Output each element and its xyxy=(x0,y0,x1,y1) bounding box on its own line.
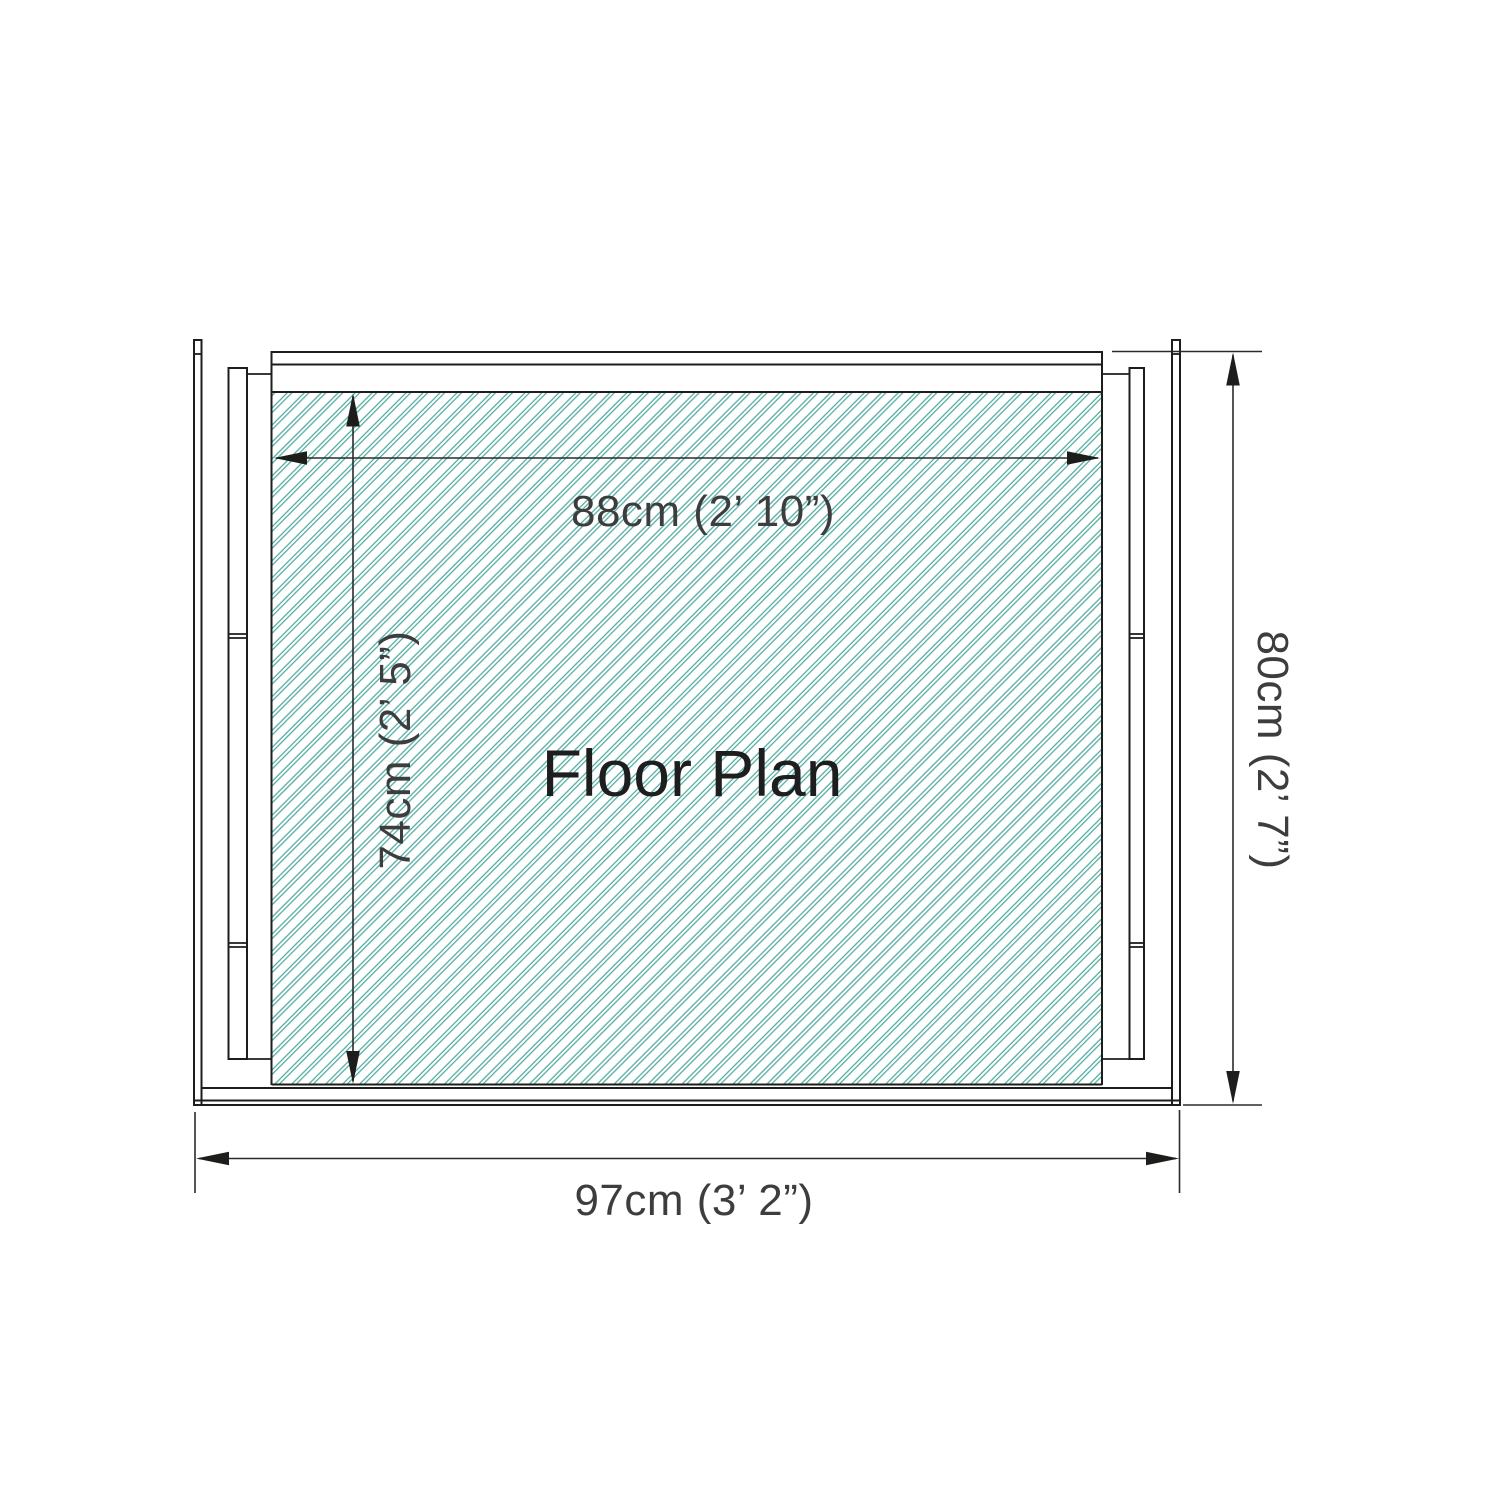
arrowhead-up-icon xyxy=(1226,353,1240,386)
arrowhead-right-icon xyxy=(1146,1152,1179,1166)
dim-label-outer-height: 80cm (2’ 7”) xyxy=(1248,630,1297,869)
dim-label-inner-width: 88cm (2’ 10”) xyxy=(571,487,835,536)
right-frame-strip xyxy=(1130,368,1145,1059)
dimension-outer-width: 97cm (3’ 2”) xyxy=(195,1110,1180,1225)
page-title: Floor Plan xyxy=(542,736,843,810)
floor-plan-canvas: 88cm (2’ 10”) 74cm (2’ 5”) 80cm (2’ 7”) … xyxy=(0,0,1500,1500)
right-post xyxy=(1172,340,1180,1105)
arrowhead-left-icon xyxy=(196,1152,229,1166)
dim-label-outer-width: 97cm (3’ 2”) xyxy=(574,1176,813,1225)
floor-plan-drawing: 88cm (2’ 10”) 74cm (2’ 5”) 80cm (2’ 7”) … xyxy=(0,0,1500,1500)
left-post xyxy=(194,340,202,1105)
dimension-outer-height: 80cm (2’ 7”) xyxy=(1112,352,1297,1106)
arrowhead-down-icon xyxy=(1226,1071,1240,1104)
dim-label-inner-depth: 74cm (2’ 5”) xyxy=(371,630,420,869)
left-frame-strip xyxy=(229,368,248,1059)
